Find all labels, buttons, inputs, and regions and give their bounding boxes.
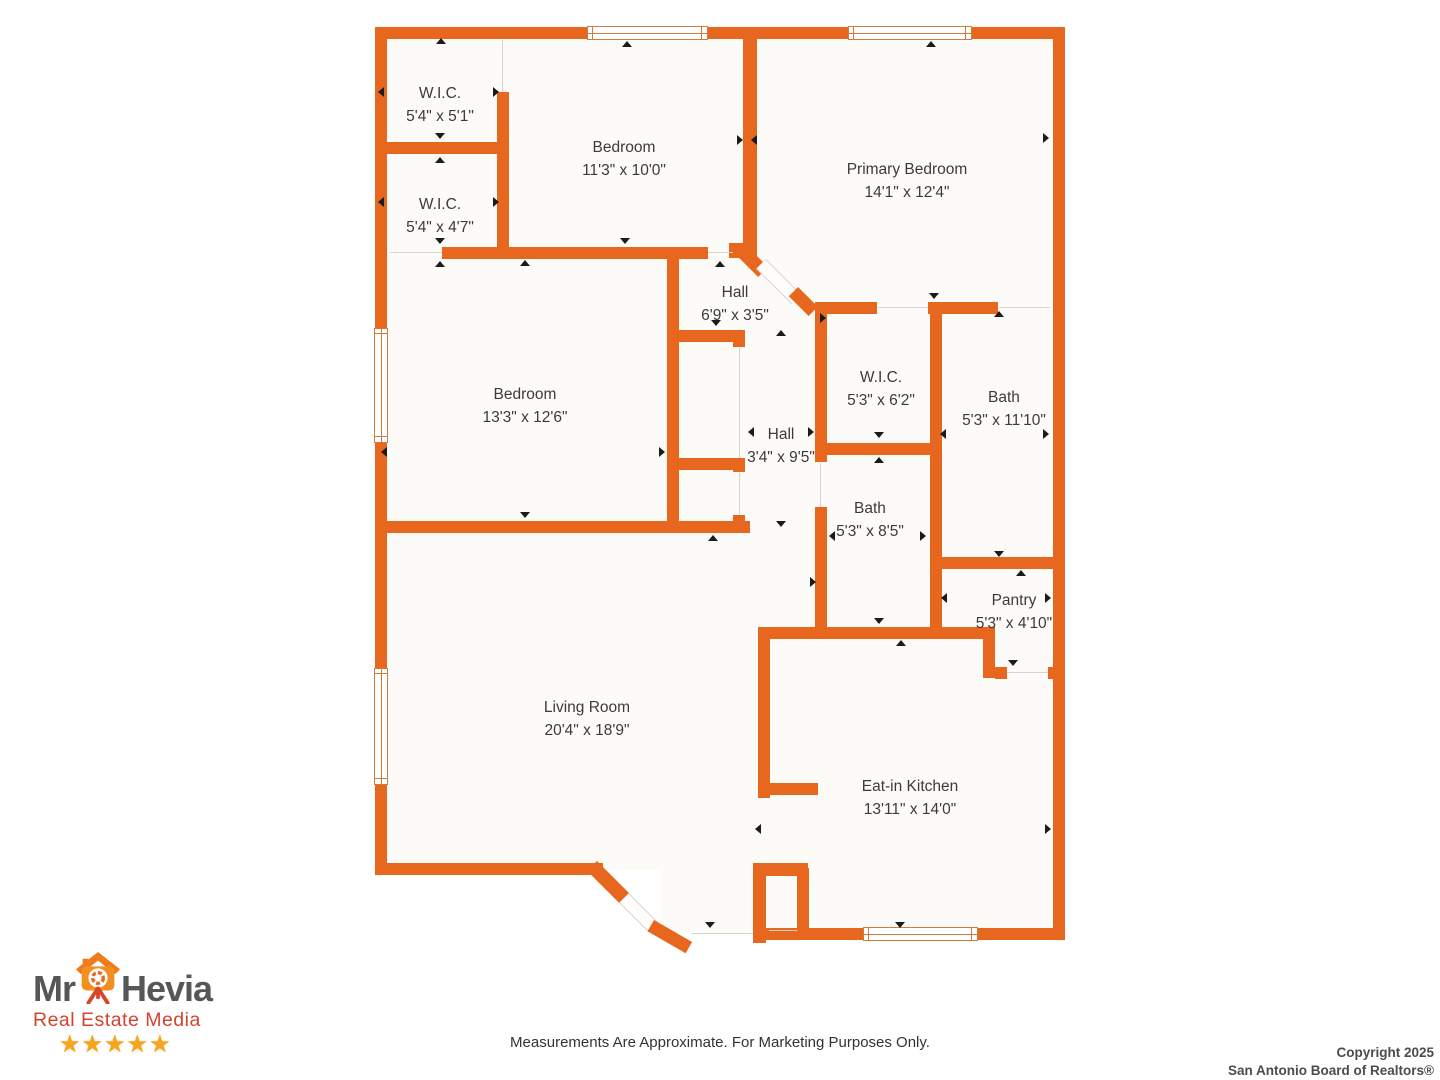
room-dims: 13'3" x 12'6"	[415, 406, 635, 429]
wall	[930, 557, 1065, 569]
door-marker	[874, 618, 884, 624]
door-marker	[751, 135, 757, 145]
room-label-hall-2: Hall 3'4" x 9'5"	[671, 423, 891, 469]
room-dims: 6'9" x 3'5"	[625, 304, 845, 327]
room-dims: 20'4" x 18'9"	[477, 719, 697, 742]
room-name: W.I.C.	[330, 193, 550, 216]
room-dims: 5'4" x 4'7"	[330, 216, 550, 239]
door-marker	[737, 135, 743, 145]
room-name: Hall	[625, 281, 845, 304]
room-dims: 11'3" x 10'0"	[514, 159, 734, 182]
room-name: Pantry	[904, 589, 1124, 612]
door-marker	[810, 577, 816, 587]
door-opening	[769, 930, 797, 931]
wall	[375, 863, 603, 875]
room-label-bath-1: Bath 5'3" x 11'10"	[894, 386, 1114, 432]
window	[863, 927, 978, 941]
door-marker	[520, 512, 530, 518]
door-marker	[896, 640, 906, 646]
window	[374, 668, 388, 785]
door-marker	[705, 922, 715, 928]
wall	[733, 330, 745, 347]
door-marker	[755, 824, 761, 834]
logo-house-camera-icon	[73, 950, 123, 1009]
logo-brand-first: Mr	[33, 971, 75, 1007]
door-opening	[390, 252, 442, 253]
room-dims: 5'4" x 5'1"	[330, 105, 550, 128]
room-dims: 14'1" x 12'4"	[797, 181, 1017, 204]
wall	[387, 142, 497, 154]
door-marker	[435, 261, 445, 267]
door-marker	[381, 447, 387, 457]
door-marker	[776, 330, 786, 336]
room-label-wic-2: W.I.C. 5'4" x 4'7"	[330, 193, 550, 239]
door-marker	[622, 41, 632, 47]
room-name: Hall	[671, 423, 891, 446]
door-marker	[708, 535, 718, 541]
window	[587, 26, 708, 40]
wall	[375, 521, 750, 533]
disclaimer-text: Measurements Are Approximate. For Market…	[0, 1034, 1440, 1051]
room-dims: 13'11" x 14'0"	[800, 798, 1020, 821]
door-marker	[520, 260, 530, 266]
door-marker	[994, 551, 1004, 557]
room-dims: 5'3" x 8'5"	[760, 520, 980, 543]
room-name: Bath	[894, 386, 1114, 409]
floor-plan-page: W.I.C. 5'4" x 5'1" Bedroom 11'3" x 10'0"…	[0, 0, 1440, 1080]
floor-area	[660, 870, 1060, 932]
door-marker	[1043, 133, 1049, 143]
room-name: Eat-in Kitchen	[800, 775, 1020, 798]
room-label-living-room: Living Room 20'4" x 18'9"	[477, 696, 697, 742]
room-dims: 5'3" x 4'10"	[904, 612, 1124, 635]
room-label-bath-2: Bath 5'3" x 8'5"	[760, 497, 980, 543]
room-label-bedroom-1: Bedroom 11'3" x 10'0"	[514, 136, 734, 182]
door-marker	[895, 922, 905, 928]
door-marker	[659, 447, 665, 457]
door-opening	[739, 473, 740, 515]
logo-brand-row: Mr Hevia	[33, 950, 233, 1007]
door-opening	[708, 252, 733, 253]
wall	[797, 868, 809, 932]
room-label-hall-1: Hall 6'9" x 3'5"	[625, 281, 845, 327]
logo-brand-last: Hevia	[121, 971, 212, 1007]
room-label-pantry: Pantry 5'3" x 4'10"	[904, 589, 1124, 635]
room-label-primary-bedroom: Primary Bedroom 14'1" x 12'4"	[797, 158, 1017, 204]
room-name: Bath	[760, 497, 980, 520]
door-marker	[620, 238, 630, 244]
door-opening	[999, 307, 1050, 308]
door-marker	[926, 41, 936, 47]
room-name: W.I.C.	[330, 82, 550, 105]
window	[848, 26, 972, 40]
door-marker	[1045, 824, 1051, 834]
room-label-bedroom-2: Bedroom 13'3" x 12'6"	[415, 383, 635, 429]
wall	[995, 667, 1007, 679]
door-marker	[435, 133, 445, 139]
room-name: Bedroom	[415, 383, 635, 406]
room-label-wic-1: W.I.C. 5'4" x 5'1"	[330, 82, 550, 128]
room-dims: 5'3" x 11'10"	[894, 409, 1114, 432]
door-marker	[1008, 660, 1018, 666]
room-name: Living Room	[477, 696, 697, 719]
wall	[1053, 27, 1065, 940]
door-marker	[994, 311, 1004, 317]
door-marker	[929, 293, 939, 299]
copyright-line1: Copyright 2025	[1228, 1044, 1434, 1062]
room-name: Bedroom	[514, 136, 734, 159]
door-marker	[435, 157, 445, 163]
door-marker	[436, 38, 446, 44]
room-dims: 3'4" x 9'5"	[671, 446, 891, 469]
copyright-line2: San Antonio Board of Realtors®	[1228, 1062, 1434, 1080]
window	[374, 328, 388, 443]
door-marker	[1016, 570, 1026, 576]
room-label-eat-in-kitchen: Eat-in Kitchen 13'11" x 14'0"	[800, 775, 1020, 821]
door-opening	[1007, 672, 1048, 673]
door-marker	[715, 261, 725, 267]
door-opening	[692, 933, 753, 934]
wall	[1048, 667, 1065, 679]
door-opening	[878, 307, 928, 308]
logo-tagline: Real Estate Media	[33, 1009, 233, 1032]
copyright-notice: Copyright 2025 San Antonio Board of Real…	[1228, 1044, 1434, 1080]
room-name: Primary Bedroom	[797, 158, 1017, 181]
wall	[758, 627, 770, 798]
